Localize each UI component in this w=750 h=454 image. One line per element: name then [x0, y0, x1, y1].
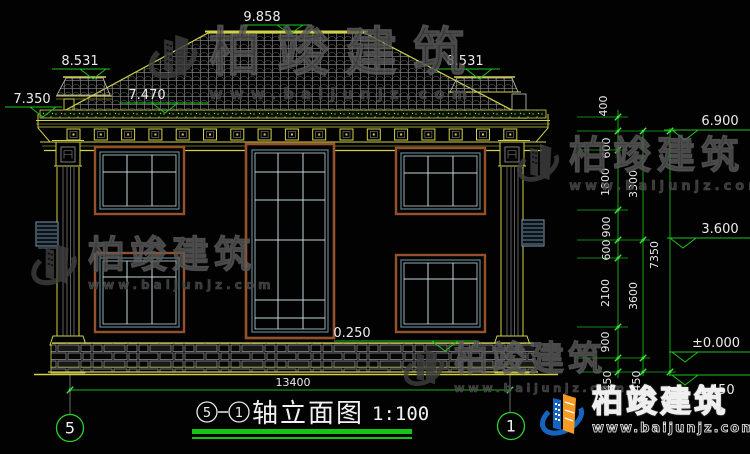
elevation-canvas: 9.858 8.531 7.350 7.470 8.531 0.250 400 … [0, 0, 750, 454]
dim-900b: 900 [599, 332, 612, 353]
grid-bubble-right-label: 1 [506, 417, 516, 436]
main-roof-slope [62, 33, 527, 118]
dim-3300: 3300 [627, 170, 640, 198]
grid-bubble-left-label: 5 [65, 419, 75, 438]
level-upper-right: 8.531 [446, 54, 483, 69]
level-eave-left: 7.350 [13, 92, 50, 107]
level-ground: 0.450 [697, 383, 734, 398]
dim-1800: 1800 [599, 168, 612, 196]
dim-400: 400 [597, 96, 610, 117]
window-1f-left [95, 253, 184, 332]
dim-600a: 600 [600, 138, 613, 159]
level-floor-zero: ±0.000 [692, 336, 740, 351]
level-upper-left: 8.531 [61, 54, 98, 69]
louver-left [36, 222, 58, 248]
level-ridge: 9.858 [243, 10, 280, 25]
dim-600b: 600 [600, 240, 613, 261]
level-plinth: 0.250 [333, 326, 370, 341]
title-underline-thin [192, 437, 412, 439]
window-1f-right [396, 255, 485, 332]
drawing-title: 5 1 轴立面图 1:100 [192, 399, 429, 439]
louver-right [522, 220, 544, 246]
dim-total-width: 13400 [276, 376, 311, 389]
pilaster-capital [500, 142, 524, 166]
stone-plinth [48, 343, 538, 372]
cad-elevation-drawing: 9.858 8.531 7.350 7.470 8.531 0.250 400 … [0, 0, 750, 454]
chain-labels: 400 600 1800 900 600 2100 900 450 3300 3… [597, 96, 661, 392]
grid-bubble-left: 5 [57, 415, 84, 442]
dim-900a: 900 [600, 217, 613, 238]
title-axis-right: 1 [235, 406, 243, 421]
dim-2100: 2100 [599, 279, 612, 307]
title-text: 轴立面图 [252, 399, 364, 429]
title-scale: 1:100 [372, 403, 429, 425]
window-2f-right [396, 148, 485, 214]
pilaster-left [50, 141, 86, 374]
pilaster-capital [56, 142, 80, 166]
dim-450b: 450 [630, 371, 643, 392]
dim-7350: 7350 [648, 241, 661, 269]
grid-bubble-right: 1 [498, 413, 525, 440]
level-eave-mid: 7.470 [128, 88, 165, 103]
roof [56, 32, 527, 119]
level-floor-mid: 3.600 [701, 222, 738, 237]
level-floor-top: 6.900 [701, 114, 738, 129]
window-stairwell-center [246, 144, 334, 338]
dentil-row [67, 129, 517, 140]
title-axis-left: 5 [203, 406, 211, 421]
dim-3600: 3600 [627, 282, 640, 310]
title-underline-thick [192, 429, 412, 434]
dim-450a: 450 [601, 371, 614, 392]
gutter-band [40, 110, 546, 118]
window-2f-left [95, 147, 184, 214]
pilaster-right [494, 141, 530, 374]
